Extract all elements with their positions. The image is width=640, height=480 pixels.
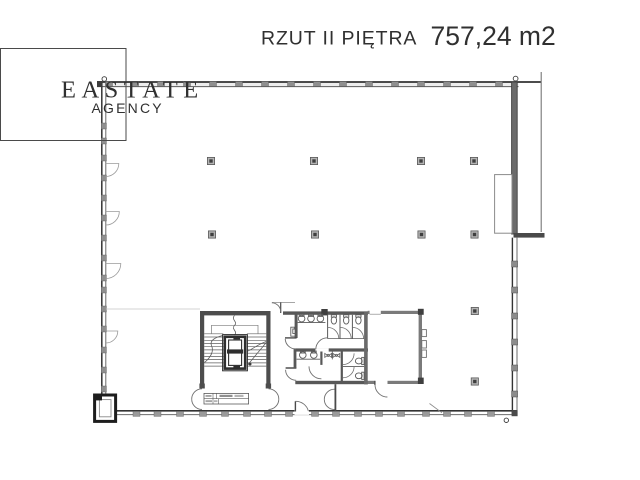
svg-text:AGENCY: AGENCY [92, 100, 164, 116]
svg-text:RZUT II PIĘTRA: RZUT II PIĘTRA [261, 28, 417, 50]
svg-text:757,24 m2: 757,24 m2 [431, 21, 556, 51]
